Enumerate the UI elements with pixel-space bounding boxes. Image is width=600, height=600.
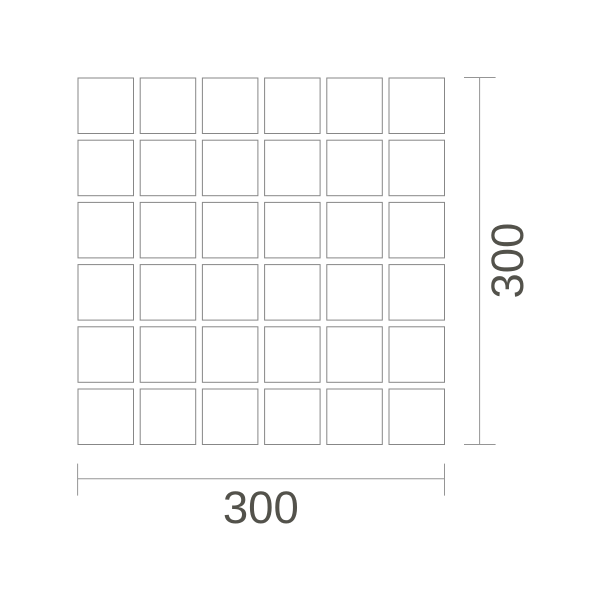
svg-text:300: 300 — [223, 482, 299, 533]
svg-text:300: 300 — [482, 223, 533, 299]
